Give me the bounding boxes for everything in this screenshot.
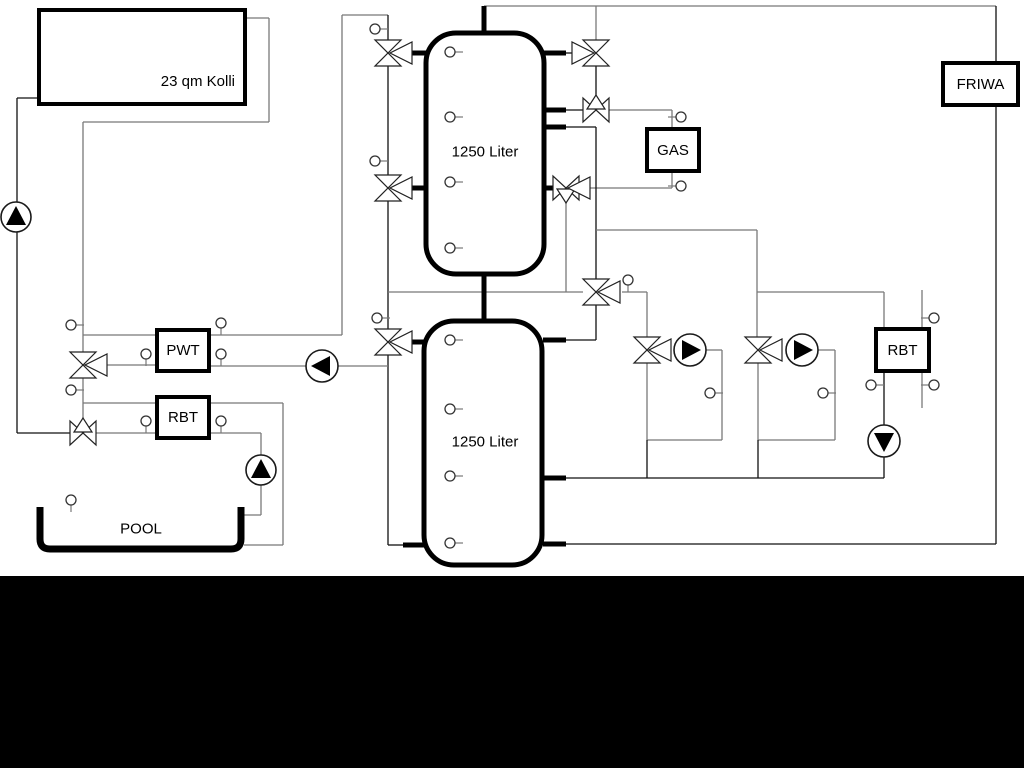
temperature-sensor-icon [818,388,836,398]
three-way-valve-icon [70,352,107,378]
gas-label: GAS [657,142,689,159]
rbt-right-label: RBT [888,342,918,359]
rbt-right-heat-exchanger-box: RBT [874,327,931,373]
buffer-tank-top-label: 1250 Liter [452,144,519,161]
temperature-sensor-icon [216,318,226,335]
friwa-station-box: FRIWA [941,61,1020,107]
temperature-sensor-icon [66,385,84,395]
three-way-valve-icon [375,329,412,355]
buffer-tank-bottom-label: 1250 Liter [452,434,519,451]
temperature-sensor-icon [216,416,226,433]
three-way-valve-icon [553,176,590,203]
rbt-left-heat-exchanger-box: RBT [155,395,211,440]
temperature-sensor-icon [705,388,723,398]
pwt-label: PWT [166,342,199,359]
schematic-canvas: 23 qm Kolli PWT RBT GAS FRIWA RBT 1250 L… [0,0,1024,768]
temperature-sensor-icon [866,380,884,390]
pump-icon [246,455,276,485]
pump-icon [674,334,706,366]
three-way-valve-icon [572,40,609,66]
pump-icon [786,334,818,366]
temperature-sensor-icon [668,112,686,122]
pump-icon [306,350,338,382]
temperature-sensor-icon [623,275,633,292]
bottom-black-bar [0,576,1024,768]
temperature-sensor-icon [921,380,939,390]
temperature-sensor-icon [668,181,686,191]
three-way-valve-icon [70,418,96,445]
temperature-sensor-icon [216,349,226,366]
three-way-valve-icon [375,175,412,201]
temperature-sensor-icon [141,416,151,433]
three-way-valve-icon [745,337,782,363]
temperature-sensor-icon [921,313,939,323]
solar-collector-box: 23 qm Kolli [37,8,247,106]
solar-collector-label: 23 qm Kolli [161,73,235,90]
three-way-valve-icon [583,279,620,305]
pump-icon [1,202,31,232]
pool-label: POOL [120,521,162,538]
temperature-sensor-icon [370,24,388,34]
friwa-label: FRIWA [957,76,1005,93]
three-way-valve-icon [375,40,412,66]
rbt-left-label: RBT [168,409,198,426]
three-way-valve-icon [634,337,671,363]
pwt-heat-exchanger-box: PWT [155,328,211,373]
temperature-sensor-icon [372,313,390,323]
temperature-sensor-icon [141,349,151,366]
temperature-sensor-icon [66,320,84,330]
temperature-sensor-icon [370,156,388,166]
temperature-sensor-icon [66,495,76,512]
three-way-valve-icon [583,95,609,122]
gas-boiler-box: GAS [645,127,701,173]
pump-icon [868,425,900,457]
